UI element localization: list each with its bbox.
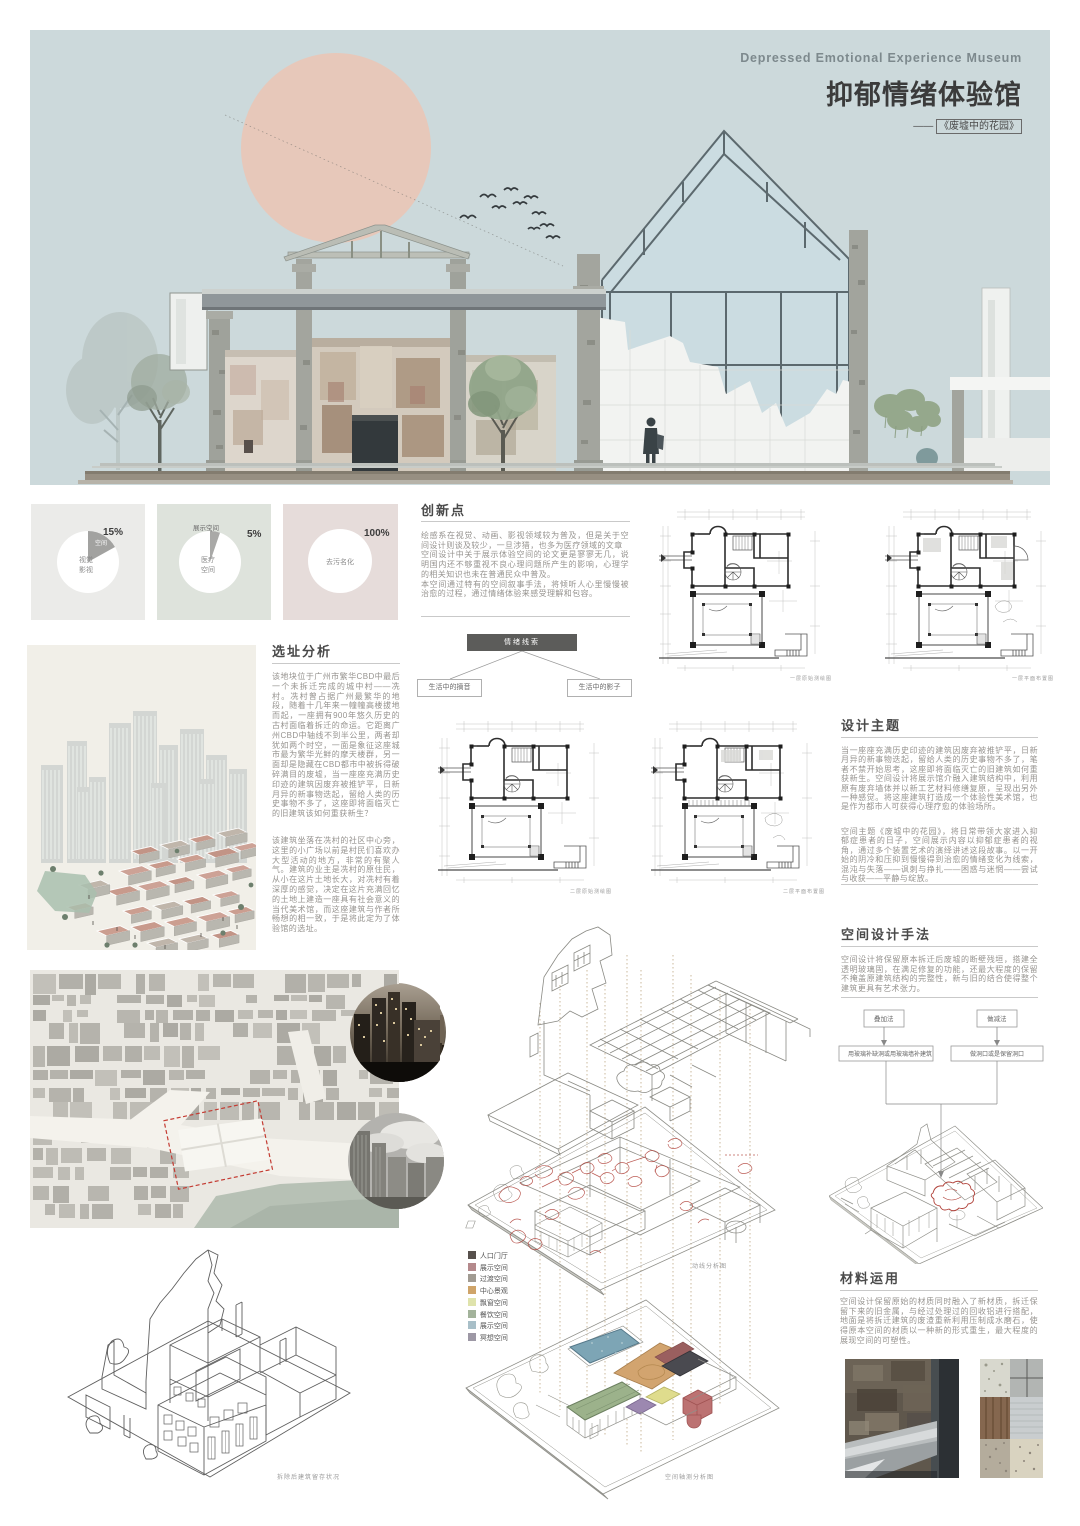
svg-text:100%: 100% xyxy=(364,528,390,539)
svg-text:空间: 空间 xyxy=(95,539,107,547)
svg-text:去污名化: 去污名化 xyxy=(326,557,354,566)
svg-text:用玻璃补缺洞或用玻璃墙补建筑: 用玻璃补缺洞或用玻璃墙补建筑 xyxy=(848,1050,932,1058)
svg-text:5%: 5% xyxy=(247,529,262,540)
svg-text:做洞口或是保留洞口: 做洞口或是保留洞口 xyxy=(970,1050,1024,1058)
svg-text:做减法: 做减法 xyxy=(987,1014,1007,1023)
svg-text:医疗: 医疗 xyxy=(201,555,215,564)
svg-text:视觉: 视觉 xyxy=(79,555,93,564)
svg-text:15%: 15% xyxy=(103,527,123,538)
svg-text:展示空间: 展示空间 xyxy=(193,523,219,532)
svg-text:叠加法: 叠加法 xyxy=(874,1014,894,1023)
svg-text:影视: 影视 xyxy=(79,565,93,574)
svg-text:空间: 空间 xyxy=(201,565,215,574)
